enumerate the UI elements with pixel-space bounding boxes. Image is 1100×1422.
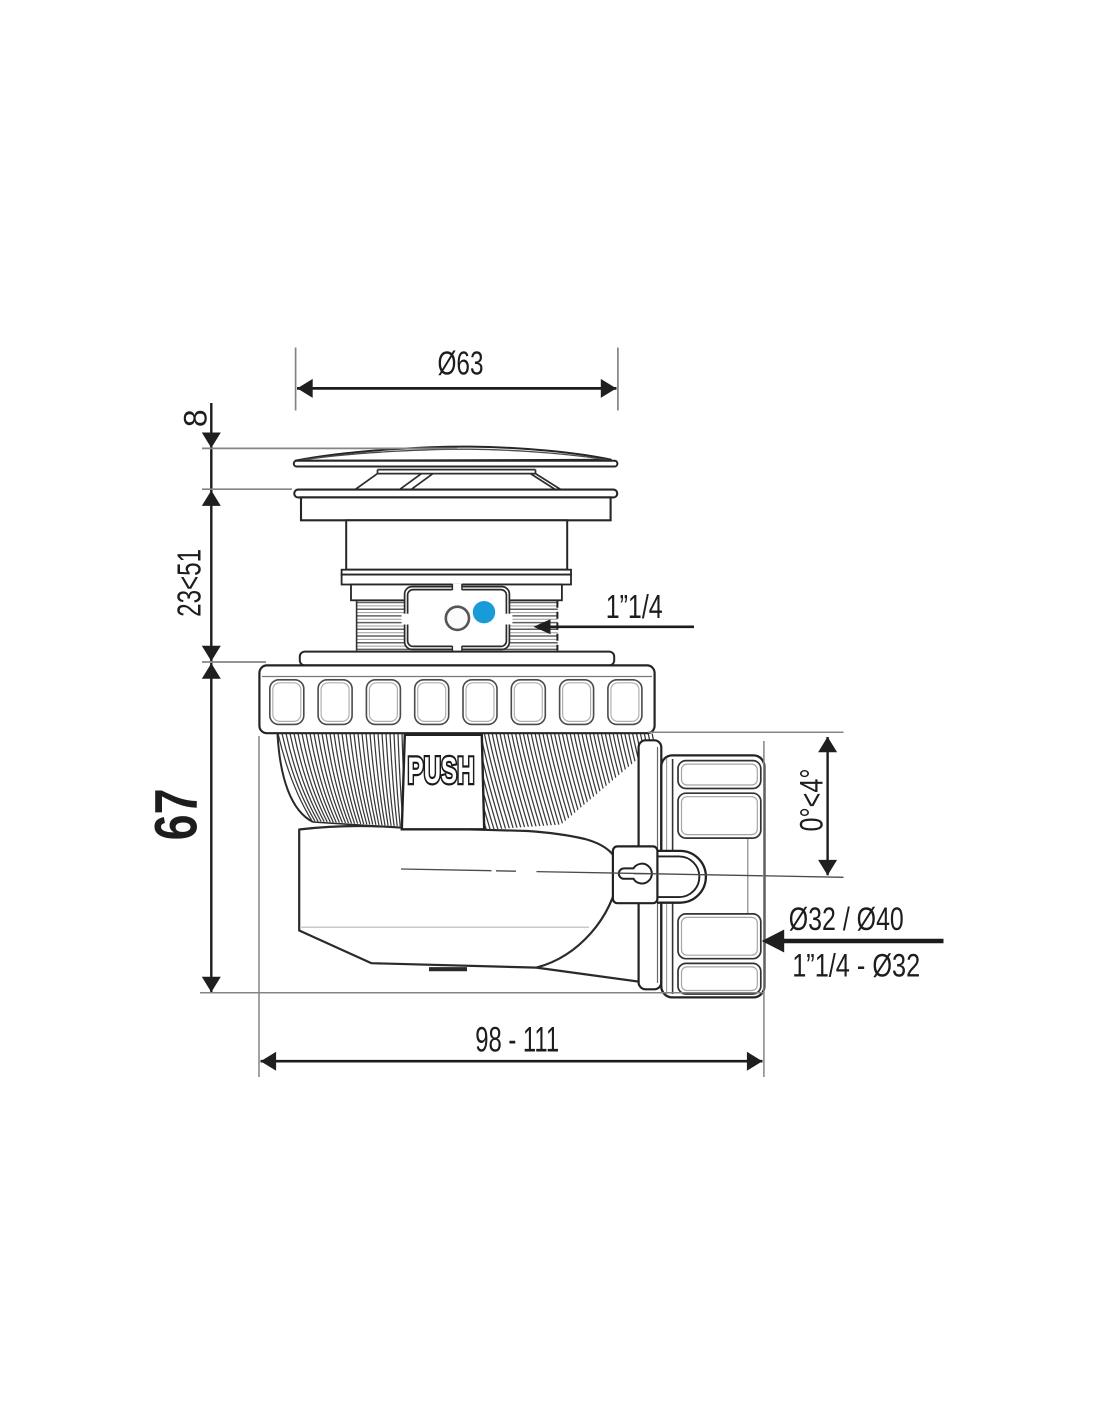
svg-text:23<51: 23<51 <box>171 549 208 617</box>
svg-text:8: 8 <box>178 409 214 427</box>
svg-text:67: 67 <box>143 788 210 840</box>
svg-text:1”1/4: 1”1/4 <box>606 588 663 625</box>
svg-text:0°<4°: 0°<4° <box>793 769 829 832</box>
svg-text:Ø32 / Ø40: Ø32 / Ø40 <box>789 901 904 937</box>
svg-text:Ø63: Ø63 <box>438 345 484 382</box>
svg-text:1”1/4 - Ø32: 1”1/4 - Ø32 <box>792 947 920 983</box>
svg-text:98 - 111: 98 - 111 <box>475 1020 559 1059</box>
svg-text:PUSH: PUSH <box>408 750 475 791</box>
